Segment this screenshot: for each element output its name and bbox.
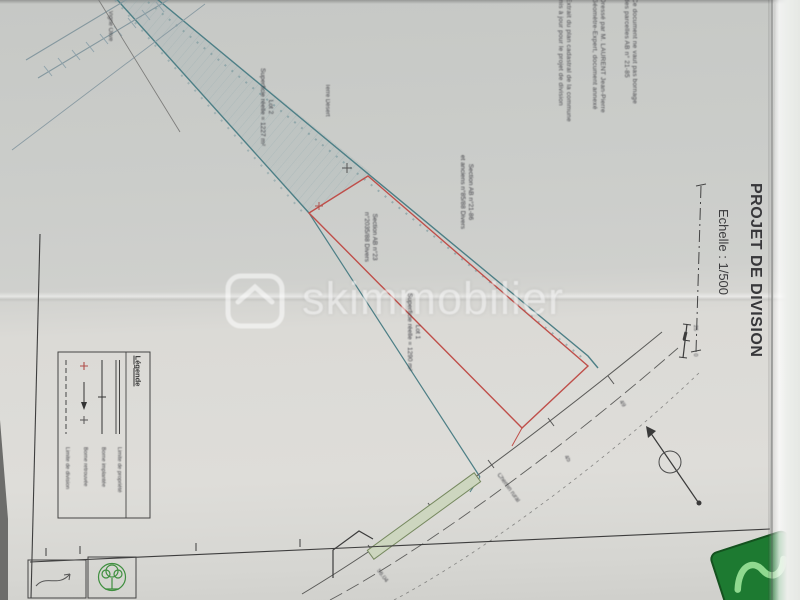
lot2-label: Lot 2 Superficie réelle = 1227 m² [258,68,274,146]
bottom-left-boxes [28,557,136,598]
place-label-vigne: Vigne Olive [107,11,113,42]
note-line: des parcelles AB n° 21-85 [622,0,630,104]
surveyor-stamp-icon [99,564,126,591]
section-label-1: Section AB n°23 n°2035/88 Divers [362,212,378,262]
road-lines [302,332,700,600]
scalebar-25: 25 [692,325,698,331]
note-line: Géomètre-Expert, document annexé [590,0,598,113]
note-block-3: Ce document ne vaut pas bornage des parc… [622,0,638,104]
note-line: Ce document ne vaut pas bornage [630,0,638,104]
lot1-outline [309,176,588,446]
section1-line2: n°2035/88 Divers [362,212,370,262]
note-block-2: Dressé par M. LAURENT Jean-Pierre Géomèt… [590,0,606,113]
scalebar-0: 0 [692,353,698,356]
note-line: Dressé par M. LAURENT Jean-Pierre [598,0,606,113]
north-arrow-icon [646,426,702,506]
note-line: Extrait du plan cadastral de la commune [564,0,572,122]
lot2-outline [112,0,598,492]
scanned-division-plan: PROJET DE DIVISION Echelle : 1/500 Extra… [0,0,800,600]
legend-entry-2: Borne retrouvée [82,447,88,486]
section2-line2: et anciens n°85/88 Divers [458,155,466,229]
note-block-1: Extrait du plan cadastral de la commune … [556,0,572,122]
legend-entry-1: Limite de division [64,447,70,489]
plan-linework [0,0,800,600]
paper-edge-line [771,0,773,600]
plan-title: PROJET DE DIVISION [746,183,764,357]
section-label-2: Section AB n°21-86 et anciens n°85/88 Di… [458,155,474,229]
lot2-area: Superficie réelle = 1227 m² [258,68,266,146]
lot1-area: Superficie réelle = 1290 m² [405,293,413,371]
legend-entry-3: Borne implantée [100,447,106,487]
scale-bar [679,324,691,358]
section2-line1: Section AB n°21-86 [466,155,474,229]
legend-title: Légende [134,356,143,387]
note-line: mis à jour pour le projet de division [556,0,564,122]
lot1-label: Lot 1 Superficie réelle = 1290 m² [405,293,421,371]
plan-scale: Echelle : 1/500 [716,209,731,295]
lot1-name: Lot 1 [413,293,421,371]
lot2-name: Lot 2 [266,68,274,146]
legend-entry-4: Limite de propriété [116,447,122,493]
sheet-frame [30,2,775,598]
section1-line1: Section AB n°23 [370,212,378,262]
place-label-terre: Terre Désert [324,83,330,116]
